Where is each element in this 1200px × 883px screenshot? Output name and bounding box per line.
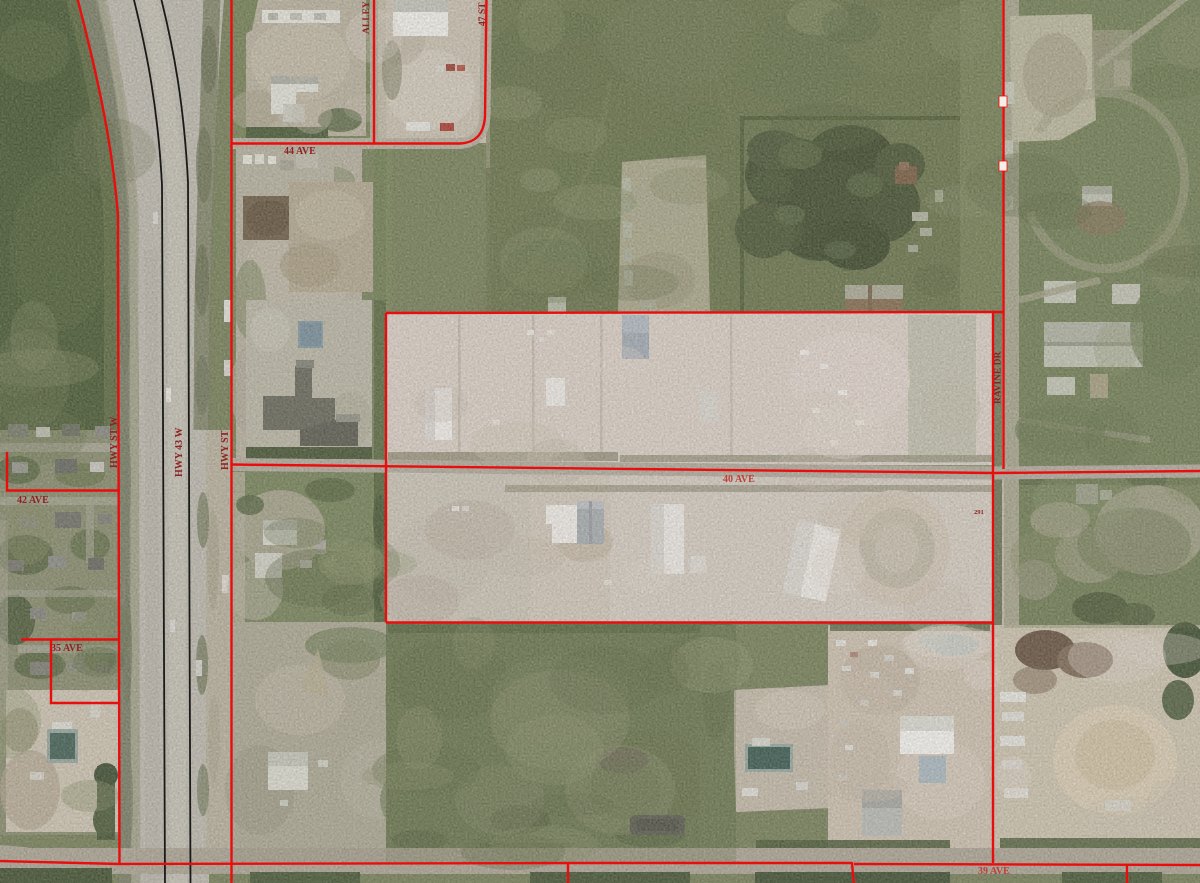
svg-text:42 AVE: 42 AVE [17,495,49,506]
svg-text:44 AVE: 44 AVE [284,146,316,157]
svg-text:HWY ST: HWY ST [220,430,231,470]
svg-text:35 AVE: 35 AVE [51,643,83,654]
svg-text:40 AVE: 40 AVE [723,474,755,485]
svg-text:47 ST: 47 ST [478,2,488,26]
svg-text:ALLEY: ALLEY [362,1,372,34]
svg-text:HWY 43 W: HWY 43 W [174,428,185,477]
svg-text:RAVINE DR: RAVINE DR [994,352,1004,404]
svg-text:HWY ST W: HWY ST W [109,417,120,469]
svg-text:291: 291 [974,509,984,516]
svg-text:39 AVE: 39 AVE [978,866,1010,877]
